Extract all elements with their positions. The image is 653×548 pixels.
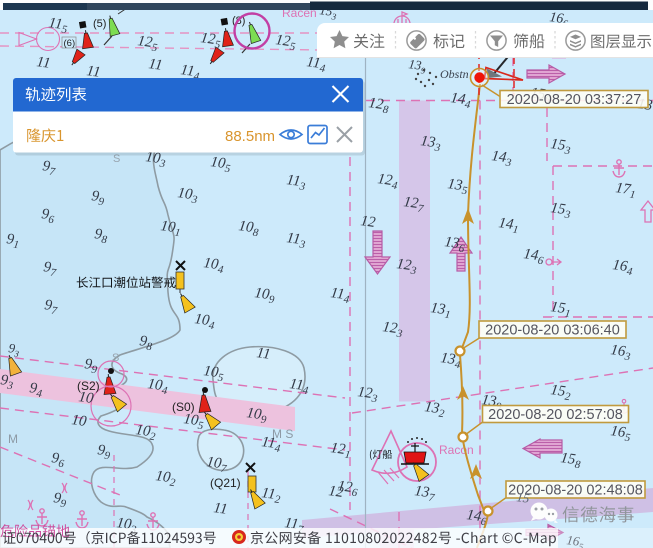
svg-text:11: 11	[35, 54, 51, 72]
svg-text:S: S	[112, 352, 119, 364]
svg-text:12: 12	[359, 213, 377, 231]
svg-text:10: 10	[70, 412, 88, 430]
svg-text:(6): (6)	[64, 38, 76, 49]
svg-text:2020-08-20 02:57:08: 2020-08-20 02:57:08	[488, 407, 623, 423]
svg-text:Racon: Racon	[439, 443, 474, 457]
svg-text:Obstn: Obstn	[440, 67, 469, 81]
svg-text:88.5nm: 88.5nm	[225, 128, 275, 145]
svg-text:2020-08-20 03:37:27: 2020-08-20 03:37:27	[507, 92, 642, 108]
svg-text:11: 11	[147, 56, 163, 74]
svg-text:M: M	[8, 432, 18, 446]
svg-text:2020-08-20 03:06:40: 2020-08-20 03:06:40	[485, 323, 620, 339]
svg-text:(Q21): (Q21)	[210, 476, 241, 490]
svg-text:12: 12	[327, 483, 345, 501]
svg-text:15: 15	[516, 489, 531, 506]
svg-text:11: 11	[212, 500, 228, 518]
svg-text:10: 10	[77, 389, 95, 407]
svg-text:11: 11	[255, 345, 271, 363]
svg-text:(5): (5)	[93, 18, 106, 30]
